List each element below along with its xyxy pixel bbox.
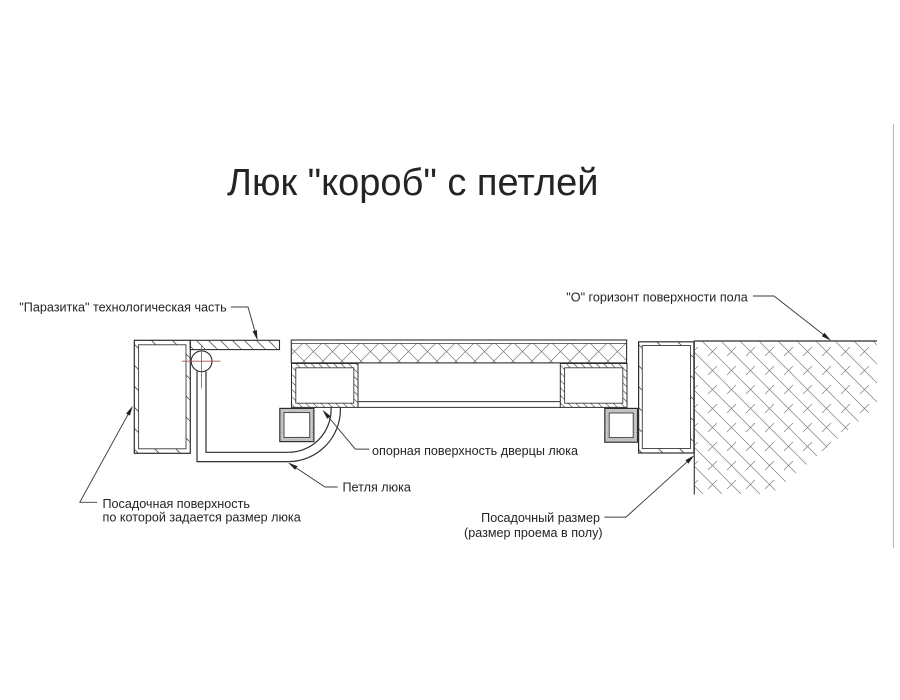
svg-text:"Паразитка" технологическая ча: "Паразитка" технологическая часть: [19, 300, 227, 314]
svg-text:опорная поверхность дверцы люк: опорная поверхность дверцы люка: [372, 444, 578, 458]
svg-text:Посадочный размер: Посадочный размер: [481, 511, 600, 525]
svg-text:"О" горизонт поверхности пола: "О" горизонт поверхности пола: [566, 291, 747, 305]
svg-text:Посадочная поверхность: Посадочная поверхность: [103, 497, 251, 511]
svg-text:(размер проема в полу): (размер проема в полу): [464, 526, 603, 540]
svg-text:Люк "короб" с петлей: Люк "короб" с петлей: [227, 162, 598, 204]
svg-text:Петля люка: Петля люка: [343, 481, 411, 495]
svg-text:по которой задается размер люк: по которой задается размер люка: [103, 511, 301, 525]
